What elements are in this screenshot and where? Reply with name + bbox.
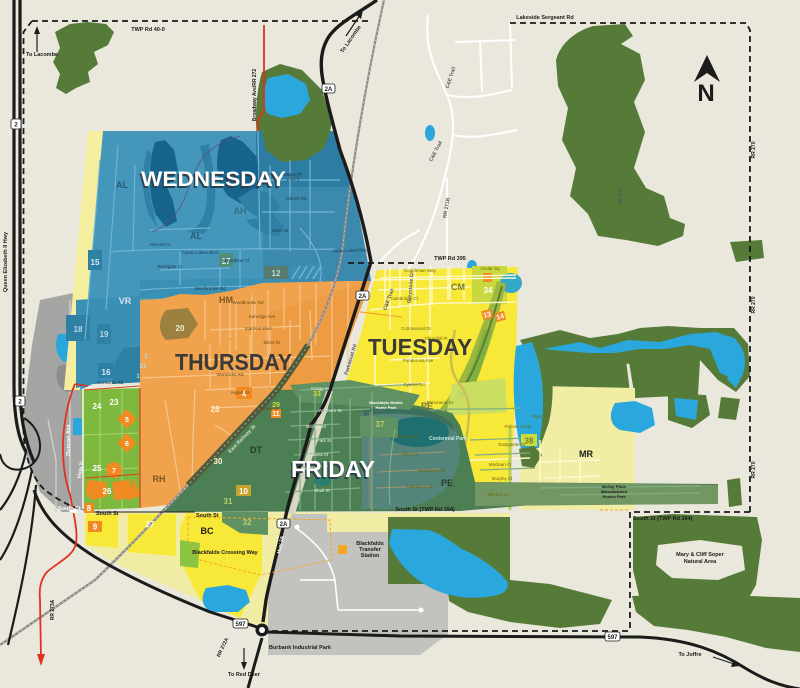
svg-text:Cyprus Rd: Cyprus Rd xyxy=(403,382,425,387)
svg-text:34: 34 xyxy=(484,286,493,295)
svg-text:36: 36 xyxy=(458,390,467,399)
svg-text:18: 18 xyxy=(74,325,83,334)
svg-text:South St (TWP Rd 394): South St (TWP Rd 394) xyxy=(633,516,693,522)
svg-text:Shull St: Shull St xyxy=(314,488,330,493)
svg-text:19: 19 xyxy=(100,330,109,339)
svg-text:Gregg St: Gregg St xyxy=(311,386,330,391)
svg-text:20: 20 xyxy=(176,324,185,333)
svg-text:2A: 2A xyxy=(280,522,288,528)
svg-text:Homes Park: Homes Park xyxy=(602,494,626,499)
svg-text:Mary & Cliff Soper: Mary & Cliff Soper xyxy=(676,552,725,558)
svg-text:5: 5 xyxy=(125,417,129,424)
svg-text:26: 26 xyxy=(103,487,112,496)
svg-text:South St: South St xyxy=(58,506,81,512)
svg-text:597: 597 xyxy=(607,635,618,641)
svg-text:10: 10 xyxy=(239,487,248,496)
svg-text:Maclean Cl: Maclean Cl xyxy=(489,462,512,467)
svg-text:CM: CM xyxy=(451,282,465,292)
svg-text:TWP Rd 40-0: TWP Rd 40-0 xyxy=(131,27,165,33)
svg-text:To Red Deer: To Red Deer xyxy=(228,672,261,678)
svg-text:7: 7 xyxy=(112,468,116,475)
svg-text:Woodbine Cl: Woodbine Cl xyxy=(223,258,249,263)
svg-text:N: N xyxy=(697,80,714,107)
svg-text:21: 21 xyxy=(140,364,147,370)
svg-text:DT: DT xyxy=(250,445,262,455)
svg-text:Home Park: Home Park xyxy=(376,405,398,410)
svg-text:Winks St: Winks St xyxy=(301,466,320,471)
svg-text:AH: AH xyxy=(234,206,247,216)
svg-text:2A: 2A xyxy=(359,294,367,300)
svg-text:Athens Rd: Athens Rd xyxy=(285,196,307,201)
svg-text:Cedar Sq: Cedar Sq xyxy=(480,266,500,271)
svg-text:32: 32 xyxy=(243,518,252,527)
svg-text:RR 270: RR 270 xyxy=(751,461,757,478)
svg-text:9: 9 xyxy=(93,523,98,532)
svg-text:8: 8 xyxy=(87,504,92,513)
svg-text:Pinetree Cl: Pinetree Cl xyxy=(397,434,419,439)
svg-text:South St (TWP Rd 394): South St (TWP Rd 394) xyxy=(395,507,455,513)
svg-text:597: 597 xyxy=(235,622,246,628)
svg-text:Piper Cl: Piper Cl xyxy=(532,414,548,419)
svg-text:6: 6 xyxy=(125,441,129,448)
svg-text:Burbank Industrial Park: Burbank Industrial Park xyxy=(269,645,332,651)
svg-text:Westbrooke Rd: Westbrooke Rd xyxy=(195,286,226,291)
svg-text:Cambridge Cl: Cambridge Cl xyxy=(390,296,418,301)
svg-text:Westgate Cr: Westgate Cr xyxy=(158,264,183,269)
svg-text:Aztec St: Aztec St xyxy=(272,228,290,233)
svg-text:38: 38 xyxy=(525,437,534,446)
svg-text:Stanley St: Stanley St xyxy=(258,406,279,411)
svg-text:Palmer Circle: Palmer Circle xyxy=(406,484,434,489)
svg-text:Broadway Ave/RR 272: Broadway Ave/RR 272 xyxy=(252,69,258,122)
svg-text:Duncan Ave: Duncan Ave xyxy=(66,424,72,455)
svg-text:VR: VR xyxy=(119,296,132,306)
svg-text:South St: South St xyxy=(196,513,219,519)
svg-text:Palmer Circle: Palmer Circle xyxy=(504,424,532,429)
svg-text:Athens Pl: Athens Pl xyxy=(282,172,301,177)
svg-text:Ponderosa Ave: Ponderosa Ave xyxy=(403,358,434,363)
svg-text:WEDNESDAY: WEDNESDAY xyxy=(141,168,286,191)
svg-text:28: 28 xyxy=(211,405,220,414)
svg-text:24: 24 xyxy=(93,402,102,411)
svg-text:Sunridge Ave: Sunridge Ave xyxy=(249,314,276,319)
svg-text:AL: AL xyxy=(190,231,202,241)
svg-text:South St: South St xyxy=(96,511,119,517)
svg-text:To Lacombe: To Lacombe xyxy=(26,52,58,58)
svg-text:37: 37 xyxy=(376,420,385,429)
svg-text:Eastpointe Dr: Eastpointe Dr xyxy=(418,468,446,473)
svg-text:Park St: Park St xyxy=(317,438,333,443)
svg-text:Station: Station xyxy=(361,553,380,559)
svg-text:30: 30 xyxy=(214,457,223,466)
svg-text:15: 15 xyxy=(91,258,100,267)
svg-text:Murphy Cl: Murphy Cl xyxy=(492,476,513,481)
svg-text:31: 31 xyxy=(224,497,233,506)
svg-text:Natural Area: Natural Area xyxy=(684,559,717,565)
svg-text:RR 270: RR 270 xyxy=(751,141,757,158)
svg-text:23: 23 xyxy=(110,398,119,407)
svg-text:TUESDAY: TUESDAY xyxy=(368,334,472,360)
svg-text:Aspen Lakes Blvd: Aspen Lakes Blvd xyxy=(182,250,219,255)
svg-text:BC: BC xyxy=(201,526,214,536)
svg-text:Queen Elizabeth II Hwy: Queen Elizabeth II Hwy xyxy=(3,231,9,292)
svg-text:RR 273A: RR 273A xyxy=(50,599,56,620)
svg-text:Panorama Dr: Panorama Dr xyxy=(427,400,454,405)
svg-text:33: 33 xyxy=(313,391,321,398)
svg-text:To Joffre: To Joffre xyxy=(678,652,701,658)
svg-text:RR 271: RR 271 xyxy=(618,187,624,204)
svg-text:Indiana St: Indiana St xyxy=(308,452,329,457)
svg-text:MR: MR xyxy=(579,449,593,459)
svg-text:Eastpointe Dr: Eastpointe Dr xyxy=(498,442,526,447)
svg-text:Cottonwood Dr: Cottonwood Dr xyxy=(401,326,432,331)
svg-text:16: 16 xyxy=(102,368,111,377)
svg-text:25: 25 xyxy=(93,464,102,473)
svg-text:Churchill Pl: Churchill Pl xyxy=(425,336,448,341)
svg-text:Womacks Rd: Womacks Rd xyxy=(217,372,244,377)
svg-text:PE: PE xyxy=(441,478,453,488)
svg-text:RR 270: RR 270 xyxy=(751,296,757,313)
svg-text:Almond Ct: Almond Ct xyxy=(149,242,171,247)
svg-text:HM: HM xyxy=(219,295,233,305)
svg-text:Willson St: Willson St xyxy=(306,424,327,429)
svg-text:Womacks Rd: Womacks Rd xyxy=(97,380,124,385)
svg-text:11: 11 xyxy=(272,411,280,418)
svg-text:Piper Cl: Piper Cl xyxy=(402,452,418,457)
svg-text:Waghorn St: Waghorn St xyxy=(318,408,342,413)
svg-text:AL: AL xyxy=(116,180,128,190)
svg-text:27: 27 xyxy=(146,520,155,529)
svg-text:TWP Rd 395: TWP Rd 395 xyxy=(434,256,466,262)
svg-text:Silver Dr: Silver Dr xyxy=(263,340,281,345)
svg-text:Weelbrooke Rd: Weelbrooke Rd xyxy=(233,300,264,305)
svg-text:2A: 2A xyxy=(325,87,333,93)
svg-text:12: 12 xyxy=(272,269,281,278)
svg-text:Lakeside Sergeant Rd: Lakeside Sergeant Rd xyxy=(516,15,573,21)
svg-text:RH: RH xyxy=(153,474,166,484)
svg-text:Aspen Dr: Aspen Dr xyxy=(231,390,250,395)
svg-text:Mitchell Cr: Mitchell Cr xyxy=(487,492,509,497)
svg-text:Stanford Blvd: Stanford Blvd xyxy=(244,326,272,331)
svg-text:Centennial Park: Centennial Park xyxy=(429,436,467,442)
svg-text:Blackfalds Crossing Way: Blackfalds Crossing Way xyxy=(192,550,258,556)
svg-text:Coachman Way: Coachman Way xyxy=(404,268,437,273)
